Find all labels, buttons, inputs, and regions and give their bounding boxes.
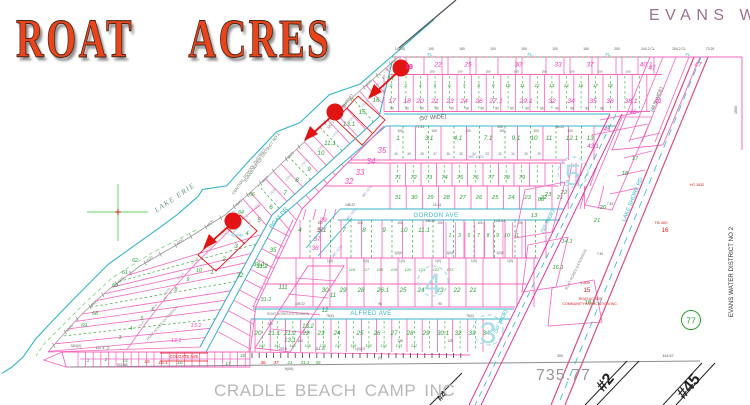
svg-text:14.14: 14.14 [433,203,441,207]
svg-text:32: 32 [498,152,502,156]
svg-text:32: 32 [455,330,462,337]
svg-text:16: 16 [372,97,380,104]
svg-text:ROAT ACRES: ROAT ACRES [579,297,602,301]
svg-text:FL: FL [606,52,612,57]
svg-text:1(X): 1(X) [399,259,405,263]
svg-text:5.1: 5.1 [318,227,327,234]
svg-text:COMMUNITY ASSOCIATION INC.: COMMUNITY ASSOCIATION INC. [562,302,617,306]
svg-text:HC 1632: HC 1632 [690,183,704,187]
svg-text:25: 25 [491,195,499,201]
svg-text:28: 28 [356,287,365,294]
svg-text:10: 10 [505,83,511,88]
svg-text:24: 24 [507,195,514,201]
svg-text:7: 7 [283,190,287,197]
svg-text:157.4: 157.4 [96,346,105,350]
svg-text:100: 100 [541,70,546,74]
svg-text:(50' WIDE): (50' WIDE) [419,114,447,122]
svg-text:17(X)0: 17(X)0 [360,99,369,109]
svg-text:75: 75 [457,175,464,181]
svg-text:90: 90 [495,107,499,111]
svg-text:36: 36 [260,360,266,365]
svg-text:100: 100 [429,70,434,74]
svg-text:45: 45 [604,127,611,133]
svg-text:300: 300 [557,354,563,358]
svg-text:26: 26 [373,330,381,337]
svg-text:1(0)0: 1(0)0 [496,251,504,255]
svg-text:133: 133 [396,344,403,348]
svg-text:7: 7 [463,83,466,88]
svg-text:23: 23 [523,195,531,201]
svg-text:1: 1 [449,233,452,239]
svg-text:ROAT ACRES EXTENSION: ROAT ACRES EXTENSION [267,312,310,316]
svg-text:13.2: 13.2 [191,323,203,329]
svg-text:7.40: 7.40 [607,202,613,206]
svg-text:1(0)0: 1(0)0 [446,251,454,255]
svg-text:35: 35 [378,146,387,155]
svg-text:21: 21 [593,218,600,224]
svg-text:2: 2 [389,83,393,88]
svg-text:100: 100 [569,70,574,74]
svg-text:34: 34 [567,98,575,105]
svg-text:29.1: 29.1 [518,98,532,105]
svg-text:79: 79 [519,175,526,181]
svg-text:37: 37 [433,152,437,156]
svg-text:100: 100 [428,47,434,51]
svg-text:73.29: 73.29 [706,47,715,51]
svg-text:140: 140 [297,339,303,343]
svg-text:1(X): 1(X) [507,259,513,263]
svg-text:8: 8 [477,83,480,88]
svg-text:32: 32 [237,273,244,279]
svg-text:22: 22 [302,330,310,337]
svg-text:11: 11 [330,293,336,299]
svg-text:100: 100 [597,70,602,74]
svg-text:100: 100 [499,129,505,133]
svg-text:100: 100 [533,129,539,133]
svg-text:140: 140 [289,344,296,348]
svg-text:40(X): 40(X) [206,219,215,228]
svg-text:28: 28 [406,330,414,337]
svg-text:4.1: 4.1 [454,135,463,142]
svg-text:20: 20 [415,98,424,105]
svg-text:17(X)0: 17(X)0 [136,320,145,330]
svg-text:21: 21 [468,287,476,294]
svg-text:1(0)2.5: 1(0)2.5 [355,347,365,351]
svg-text:100: 100 [457,70,462,74]
svg-text:138: 138 [397,339,403,343]
svg-text:9: 9 [496,233,499,239]
svg-text:90: 90 [465,107,469,111]
svg-text:8: 8 [295,177,299,184]
svg-text:26: 26 [474,98,483,105]
svg-text:139: 139 [304,344,311,348]
svg-text:1(X): 1(X) [363,259,369,263]
svg-text:(49.5' WIDE): (49.5' WIDE) [649,86,664,113]
svg-text:3.1: 3.1 [425,135,434,142]
svg-text:90: 90 [405,107,409,111]
svg-text:34: 34 [367,157,376,166]
svg-text:10: 10 [530,135,538,142]
svg-text:FL: FL [686,52,692,57]
svg-text:4: 4 [130,326,133,332]
svg-text:33: 33 [469,330,476,337]
svg-text:17: 17 [632,156,639,162]
svg-text:72: 72 [410,175,417,181]
svg-text:6: 6 [269,204,273,211]
svg-text:3: 3 [234,243,238,250]
svg-text:29: 29 [426,195,434,201]
svg-text:30: 30 [524,152,528,156]
svg-text:33: 33 [554,62,562,69]
svg-text:90: 90 [510,107,514,111]
svg-text:2: 2 [104,357,108,363]
svg-text:10: 10 [504,233,510,239]
svg-text:37: 37 [273,360,279,365]
svg-text:1: 1 [210,269,214,276]
svg-text:90: 90 [390,107,394,111]
svg-text:90: 90 [555,107,559,111]
svg-text:20: 20 [254,330,262,337]
svg-text:36: 36 [606,98,614,105]
svg-text:100: 100 [567,129,573,133]
svg-text:21: 21 [430,98,439,105]
svg-text:17(X)0: 17(X)0 [284,172,293,182]
svg-text:90: 90 [525,107,529,111]
svg-text:444.57: 444.57 [663,354,674,358]
svg-text:22: 22 [433,62,442,69]
svg-text:7: 7 [477,233,480,239]
svg-text:8: 8 [362,227,366,234]
svg-text:135: 135 [365,344,372,348]
svg-text:18: 18 [607,83,613,88]
svg-text:15: 15 [358,109,366,116]
svg-text:EVANS WATER DISTRICT NO 2: EVANS WATER DISTRICT NO 2 [243,131,281,182]
svg-text:4: 4 [425,268,442,301]
svg-text:23: 23 [317,330,325,337]
svg-text:76: 76 [472,175,479,181]
svg-text:10: 10 [400,227,408,234]
svg-text:46: 46 [630,110,637,116]
svg-text:1(X): 1(X) [327,259,333,263]
svg-text:1: 1 [396,135,400,142]
svg-text:13: 13 [531,213,538,219]
svg-text:100: 100 [437,221,443,225]
svg-text:137: 137 [335,344,342,348]
svg-text:27: 27 [459,195,467,201]
svg-text:31.2: 31.2 [257,264,269,270]
svg-text:12: 12 [534,83,540,88]
svg-text:(X): (X) [378,356,382,360]
svg-text:6: 6 [448,83,451,88]
svg-text:32: 32 [345,177,354,186]
svg-text:150: 150 [583,47,589,51]
svg-text:19: 19 [405,64,413,71]
svg-text:100: 100 [513,70,518,74]
svg-text:244.2 CL: 244.2 CL [641,47,655,51]
svg-text:71: 71 [395,175,401,181]
svg-text:17: 17 [388,98,396,105]
svg-text:90: 90 [435,107,439,111]
svg-text:31: 31 [511,152,515,156]
svg-text:4: 4 [298,227,302,234]
svg-text:7.1: 7.1 [484,135,493,142]
svg-text:90: 90 [480,107,484,111]
svg-text:90: 90 [585,107,589,111]
svg-text:33: 33 [356,168,365,177]
svg-text:11.1: 11.1 [418,227,430,234]
svg-text:204.2 CL: 204.2 CL [672,47,686,51]
svg-text:37: 37 [586,62,594,69]
svg-text:30: 30 [411,195,418,201]
svg-text:33: 33 [485,152,489,156]
svg-text:31N(X): 31N(X) [71,344,82,348]
svg-text:26.1: 26.1 [376,287,389,294]
svg-text:90: 90 [450,107,454,111]
svg-text:9.1: 9.1 [512,135,521,142]
svg-text:1: 1 [87,358,90,364]
svg-text:139: 139 [447,339,453,343]
svg-text:14(X0): 14(X0) [395,47,405,51]
svg-text:116: 116 [349,267,356,272]
svg-text:28: 28 [442,195,450,201]
svg-text:9(X0): 9(X0) [285,367,294,371]
svg-text:1 400: 1 400 [580,280,591,285]
svg-text:77: 77 [686,316,696,326]
svg-text:30: 30 [321,287,329,294]
svg-text:18: 18 [240,353,246,359]
svg-text:73: 73 [426,175,433,181]
svg-text:15: 15 [584,288,591,294]
svg-text:25: 25 [463,62,472,69]
svg-text:47: 47 [649,66,656,72]
svg-text:16.1: 16.1 [552,265,563,271]
svg-text:23: 23 [445,98,454,105]
svg-text:3: 3 [458,233,461,239]
svg-text:ALFRED AVE: ALFRED AVE [350,311,392,317]
svg-text:29: 29 [537,152,541,156]
svg-text:100: 100 [625,70,630,74]
svg-text:3: 3 [119,335,122,341]
svg-text:29: 29 [338,287,347,294]
svg-text:84.22: 84.22 [556,125,564,129]
svg-text:WC 1579: WC 1579 [361,185,373,198]
svg-text:100: 100 [485,70,490,74]
svg-text:40: 40 [394,152,398,156]
svg-text:134: 134 [380,344,386,348]
svg-text:FL: FL [428,52,434,57]
svg-text:36: 36 [446,152,450,156]
svg-text:18: 18 [622,171,629,177]
svg-text:32: 32 [548,98,556,105]
svg-text:113.13: 113.13 [315,347,325,351]
svg-text:14.1: 14.1 [561,239,572,245]
svg-text:WC 1579: WC 1579 [331,245,343,258]
svg-text:200: 200 [614,47,620,51]
svg-text:66: 66 [249,192,255,198]
svg-text:69: 69 [81,323,87,329]
svg-text:100: 100 [465,129,471,133]
svg-text:96: 96 [378,302,382,306]
svg-text:24: 24 [333,330,341,337]
svg-text:3: 3 [480,317,497,350]
svg-text:62: 62 [132,258,138,264]
svg-text:132: 132 [411,344,418,348]
svg-text:100: 100 [552,47,558,51]
svg-text:1(0)0: 1(0)0 [394,251,402,255]
svg-text:11: 11 [546,135,553,142]
svg-text:9: 9 [382,227,386,234]
svg-text:119: 119 [391,267,398,272]
svg-text:148.22: 148.22 [345,203,355,207]
svg-text:24: 24 [459,98,468,105]
svg-text:35: 35 [589,98,597,105]
svg-text:150: 150 [521,47,527,51]
svg-text:17: 17 [225,361,231,367]
svg-text:90: 90 [420,107,424,111]
svg-text:149.22: 149.22 [295,302,305,306]
svg-text:COLGATE AVE: COLGATE AVE [170,354,199,359]
svg-text:5: 5 [257,217,261,224]
svg-text:100: 100 [490,47,496,51]
svg-text:13: 13 [549,83,555,88]
svg-text:90: 90 [570,107,574,111]
svg-text:35: 35 [270,248,277,254]
svg-text:123: 123 [447,267,454,272]
svg-text:36: 36 [311,245,319,252]
svg-text:31.1: 31.1 [261,297,272,303]
svg-text:78: 78 [503,175,510,181]
svg-text:100: 100 [357,221,363,225]
svg-text:38: 38 [420,152,424,156]
svg-text:1(X): 1(X) [435,259,441,263]
svg-text:40(X): 40(X) [176,237,185,246]
svg-text:5: 5 [434,83,437,88]
svg-text:9: 9 [307,166,311,173]
svg-text:11: 11 [520,83,525,88]
svg-text:14: 14 [564,83,570,88]
svg-text:11.1: 11.1 [324,140,336,147]
svg-text:77: 77 [488,175,495,181]
svg-text:25: 25 [398,287,407,294]
svg-text:16: 16 [578,83,584,88]
svg-text:100: 100 [497,125,503,129]
svg-text:8: 8 [175,287,178,293]
svg-text:75(X): 75(X) [326,314,334,318]
svg-text:1(X): 1(X) [471,259,477,263]
svg-text:GORDON AVE: GORDON AVE [414,213,459,219]
svg-text:4: 4 [419,83,422,88]
svg-text:15: 15 [144,359,150,365]
svg-text:LAKE SHORE RD: LAKE SHORE RD [621,177,644,223]
svg-text:EVANS WATER DISTRICT NO 2: EVANS WATER DISTRICT NO 2 [728,226,735,317]
svg-text:9: 9 [492,83,495,88]
svg-text:10: 10 [196,268,202,274]
svg-text:17(X)0: 17(X)0 [252,201,261,211]
svg-text:60: 60 [112,283,118,289]
svg-text:100: 100 [477,221,483,225]
svg-text:150: 150 [459,47,465,51]
svg-text:111: 111 [278,285,287,291]
svg-text:118: 118 [377,267,384,272]
svg-text:146.22: 146.22 [425,219,435,223]
svg-text:17: 17 [593,83,599,88]
svg-text:26: 26 [475,195,483,201]
svg-text:27.1: 27.1 [488,98,502,105]
svg-text:29: 29 [422,330,430,337]
svg-text:13: 13 [586,135,594,142]
svg-text:8: 8 [487,233,490,239]
svg-text:120: 120 [405,267,412,272]
svg-text:142: 142 [259,344,266,348]
svg-text:144.84: 144.84 [495,219,505,223]
svg-text:25: 25 [356,330,364,337]
svg-text:140: 140 [267,322,273,326]
svg-text:90: 90 [540,107,544,111]
svg-text:30: 30 [514,62,522,69]
svg-text:31: 31 [395,195,401,201]
svg-text:74: 74 [441,175,447,181]
svg-text:100: 100 [397,221,403,225]
svg-text:21.1: 21.1 [267,330,280,337]
svg-text:18: 18 [403,98,411,105]
svg-text:1500: 1500 [734,106,738,114]
svg-text:16: 16 [662,227,669,234]
svg-text:7.40: 7.40 [597,252,603,256]
svg-text:WC 1279: WC 1279 [469,155,484,159]
svg-text:3: 3 [404,83,407,88]
svg-text:5: 5 [565,159,582,192]
svg-text:2: 2 [106,346,110,352]
svg-text:100: 100 [397,129,403,133]
svg-text:90: 90 [600,107,604,111]
svg-text:23: 23 [544,192,552,198]
svg-text:30.1: 30.1 [437,330,449,337]
svg-text:TB 400: TB 400 [655,220,669,225]
svg-text:88: 88 [538,197,545,203]
svg-text:17(X)0: 17(X)0 [331,129,340,139]
svg-text:21.2: 21.2 [283,330,297,337]
svg-text:5: 5 [468,233,471,239]
svg-text:21: 21 [286,360,293,365]
svg-text:9: 9 [187,277,190,283]
svg-text:20: 20 [599,205,607,211]
svg-text:17(X)0: 17(X)0 [268,187,277,197]
svg-text:100: 100 [431,129,437,133]
svg-text:35: 35 [459,152,463,156]
svg-text:100: 100 [317,221,323,225]
svg-text:223.5: 223.5 [279,347,287,351]
svg-text:75(X): 75(X) [466,314,474,318]
svg-text:39: 39 [407,152,411,156]
svg-text:37: 37 [313,236,321,243]
svg-text:FL: FL [528,52,534,57]
svg-text:7: 7 [342,227,346,234]
svg-text:61: 61 [122,270,128,276]
svg-text:68: 68 [92,311,98,317]
svg-text:71.33: 71.33 [416,125,424,129]
svg-text:27: 27 [390,330,398,337]
svg-text:90: 90 [438,302,442,306]
svg-text:12.1: 12.1 [566,135,578,142]
svg-text:13.1: 13.1 [171,338,182,344]
svg-text:22: 22 [452,287,461,294]
